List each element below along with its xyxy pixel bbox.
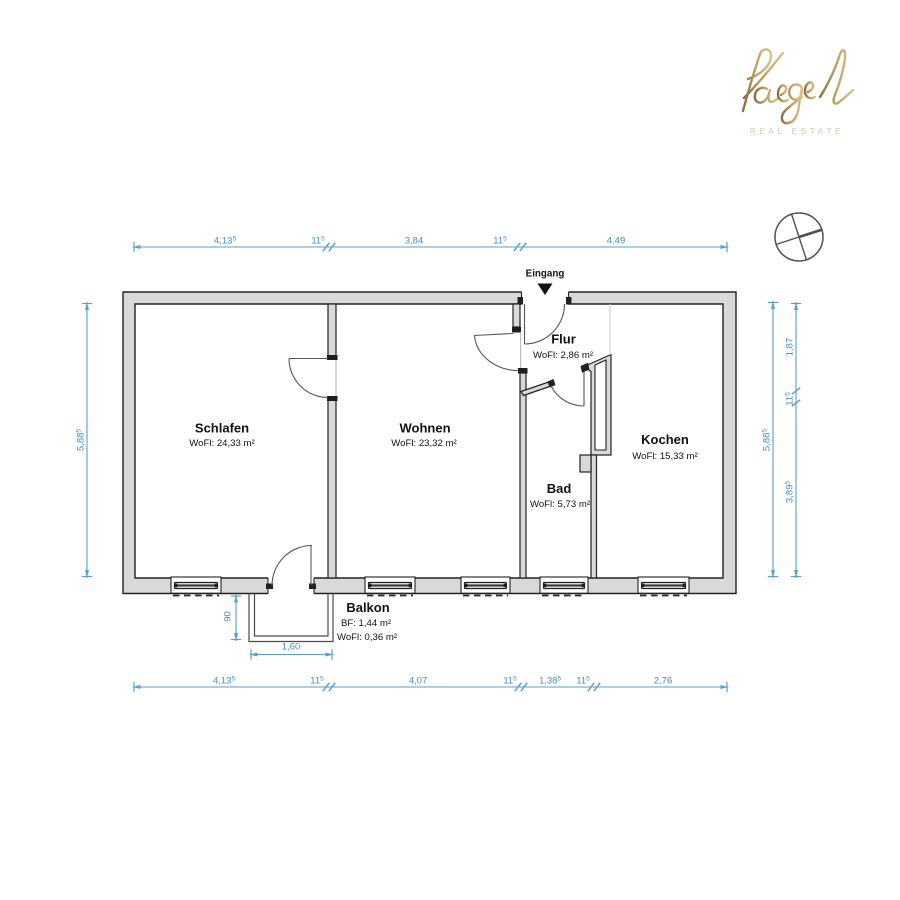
- svg-text:Wohnen: Wohnen: [399, 421, 450, 436]
- svg-text:115: 115: [311, 235, 325, 246]
- svg-text:5,885: 5,885: [761, 429, 772, 452]
- svg-text:BF: 1,44 m²: BF: 1,44 m²: [341, 618, 392, 629]
- svg-text:115: 115: [493, 235, 507, 246]
- svg-text:115: 115: [310, 675, 324, 686]
- svg-text:REAL ESTATE: REAL ESTATE: [750, 127, 845, 136]
- svg-text:Flur: Flur: [551, 332, 576, 347]
- svg-text:WoFl: 0,36 m²: WoFl: 0,36 m²: [337, 632, 398, 643]
- svg-text:3,84: 3,84: [405, 236, 424, 247]
- svg-text:1,87: 1,87: [785, 338, 796, 357]
- svg-text:4,07: 4,07: [409, 676, 428, 687]
- svg-text:4,135: 4,135: [213, 675, 236, 686]
- svg-text:5,885: 5,885: [75, 429, 86, 452]
- svg-text:115: 115: [503, 675, 517, 686]
- svg-text:WoFl: 15,33 m²: WoFl: 15,33 m²: [632, 451, 698, 462]
- svg-text:WoFl: 2,86 m²: WoFl: 2,86 m²: [533, 350, 594, 361]
- svg-text:WoFl: 23,32 m²: WoFl: 23,32 m²: [391, 438, 457, 449]
- svg-text:Bad: Bad: [547, 481, 572, 496]
- svg-text:1,60: 1,60: [282, 642, 301, 653]
- svg-text:WoFl: 24,33 m²: WoFl: 24,33 m²: [189, 438, 255, 449]
- svg-text:WoFl: 5,73 m²: WoFl: 5,73 m²: [530, 499, 591, 510]
- svg-text:Eingang: Eingang: [526, 269, 565, 280]
- svg-text:115: 115: [784, 392, 795, 406]
- svg-text:Balkon: Balkon: [346, 600, 389, 615]
- svg-text:115: 115: [576, 675, 590, 686]
- svg-text:1,385: 1,385: [539, 675, 562, 686]
- svg-text:2,76: 2,76: [654, 676, 673, 687]
- svg-text:3,895: 3,895: [784, 481, 795, 504]
- svg-text:90: 90: [223, 611, 234, 622]
- svg-text:Schlafen: Schlafen: [195, 421, 249, 436]
- svg-text:4,49: 4,49: [607, 236, 626, 247]
- svg-text:4,135: 4,135: [214, 235, 237, 246]
- svg-text:Kochen: Kochen: [641, 432, 689, 447]
